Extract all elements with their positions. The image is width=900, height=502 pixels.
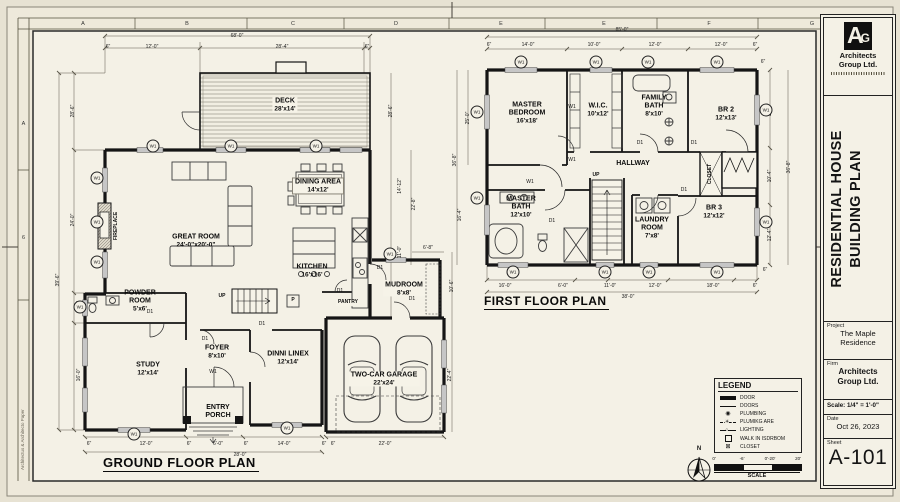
marker-w1: W1 [568, 157, 576, 163]
marker-w1: W1 [568, 104, 576, 110]
marker-w1: W1 [209, 369, 217, 375]
scale-bar-label: SCALE [714, 472, 800, 479]
marker-d1: D1 [549, 218, 555, 224]
legend-title: LEGEND [718, 381, 798, 392]
marker-w1: W1 [599, 266, 612, 279]
marker-d1: D1 [691, 140, 697, 146]
legend-item-doors: DOORS [718, 402, 798, 410]
legend-glyph-circ: ◉ [725, 411, 730, 417]
legend-label: PLUMIKG ARE [738, 419, 774, 425]
marker-w1: W1 [643, 266, 656, 279]
firm-value: Architects Group Ltd. [827, 367, 889, 386]
date-section: Date Oct 26, 2023 [824, 415, 892, 439]
marker-w1: W1 [147, 140, 160, 153]
firm-logo-section: A G Architects Group Ltd. [824, 18, 892, 96]
marker-w1: W1 [642, 56, 655, 69]
legend-item-lighting: LIGHTING [718, 426, 798, 434]
marker-w1: W1 [74, 301, 87, 314]
drawing-title-section: RESIDENTIAL HOUSE BUILDING PLAN [824, 96, 892, 322]
firm-logo-name: Architects Group Ltd. [832, 52, 884, 69]
legend-label: LIGHTING [738, 427, 764, 433]
marker-w1: W1 [471, 106, 484, 119]
marker-w1: W1 [91, 172, 104, 185]
legend-glyph-light [720, 430, 736, 431]
project-section: Project The Maple Residence [824, 322, 892, 360]
legend-glyph-line [720, 406, 736, 407]
legend-label: WALK IN ISDRBOM [738, 436, 785, 442]
marker-w1: W1 [760, 104, 773, 117]
marker-d1: D1 [259, 321, 265, 327]
marker-w1: W1 [384, 248, 397, 261]
project-value: The Maple Residence [827, 329, 889, 347]
legend-label: DOOR [738, 395, 755, 401]
firm-tagline-strip [831, 72, 885, 75]
scale-bar-graphic [714, 464, 802, 471]
logo-letter-g: G [861, 31, 870, 45]
marker-w1: W1 [526, 179, 534, 185]
ground-floor-plan-title: GROUND FLOOR PLAN [103, 455, 259, 472]
marker-d1: D1 [202, 336, 208, 342]
legend-symbol-line-icon [718, 402, 738, 410]
drawing-sheet: GROUND FLOOR PLAN FIRST FLOOR PLAN DECK2… [0, 0, 900, 502]
legend-symbol-star-icon [718, 418, 738, 426]
marker-w1: W1 [507, 266, 520, 279]
legend-item-closet: ⊠CLOSET [718, 443, 798, 451]
scale-tick: -6' [740, 456, 745, 461]
marker-d1: D1 [377, 265, 383, 271]
legend-glyph-bar [720, 396, 736, 400]
legend-label: PLUMBING [738, 411, 766, 417]
marker-w1: W1 [281, 422, 294, 435]
marker-w1: W1 [515, 56, 528, 69]
sheet-number: A-101 [827, 446, 889, 470]
legend-item-walk-in-isdrbom: WALK IN ISDRBOM [718, 434, 798, 442]
marker-w1: W1 [711, 266, 724, 279]
marker-d1: D1 [409, 296, 415, 302]
scale-tick: 0'-20' [765, 456, 776, 461]
drawing-title: RESIDENTIAL HOUSE BUILDING PLAN [828, 96, 888, 321]
scale-value: Scale: 1/4" = 1'-0" [827, 401, 889, 409]
marker-w1: W1 [310, 140, 323, 153]
legend-glyph-star [720, 422, 736, 423]
title-block: A G Architects Group Ltd. RESIDENTIAL HO… [820, 14, 896, 489]
legend-box: LEGEND DOORDOORS◉PLUMBINGPLUMIKG ARELIGH… [714, 378, 802, 453]
first-floor-plan-title: FIRST FLOOR PLAN [484, 294, 609, 310]
legend-symbol-sq-icon [718, 435, 738, 443]
legend-glyph-sqx: ⊠ [725, 444, 730, 450]
marker-w1: W1 [128, 428, 141, 441]
date-value: Oct 26, 2023 [827, 422, 889, 431]
legend-symbol-sqx-icon: ⊠ [718, 443, 738, 451]
marker-d1: D1 [681, 187, 687, 193]
legend-symbol-circ-icon: ◉ [718, 410, 738, 418]
marker-d1: D1 [637, 140, 643, 146]
scale-tick: 20' [795, 456, 801, 461]
marker-w1: W1 [91, 256, 104, 269]
marker-w1: W1 [590, 56, 603, 69]
sheet-section: Sheet A-101 [824, 439, 892, 485]
legend-item-plumbing: ◉PLUMBING [718, 410, 798, 418]
marker-w1: W1 [711, 56, 724, 69]
legend-label: DOORS [738, 403, 758, 409]
legend-rows: DOORDOORS◉PLUMBINGPLUMIKG ARELIGHTINGWAL… [718, 394, 798, 451]
legend-symbol-light-icon [718, 426, 738, 434]
legend-item-door: DOOR [718, 394, 798, 402]
scale-tick: 0' [712, 456, 715, 461]
marker-d1: D1 [337, 288, 343, 294]
marker-d1: D1 [147, 309, 153, 315]
marker-w1: W1 [471, 192, 484, 205]
marker-w1: W1 [225, 140, 238, 153]
legend-label: CLOSET [738, 444, 760, 450]
north-label: N [697, 446, 701, 452]
legend-symbol-bar-icon [718, 394, 738, 402]
marker-w1: W1 [91, 216, 104, 229]
firm-logo-icon: A G [844, 22, 872, 50]
legend-item-plumikg-are: PLUMIKG ARE [718, 418, 798, 426]
legend-glyph-sq [725, 435, 732, 442]
marker-w1: W1 [760, 216, 773, 229]
firm-section: Firm Architects Group Ltd. [824, 360, 892, 400]
scale-section: Scale: 1/4" = 1'-0" [824, 400, 892, 415]
scale-bar: 0'-6'0'-20'20' SCALE [714, 456, 802, 488]
